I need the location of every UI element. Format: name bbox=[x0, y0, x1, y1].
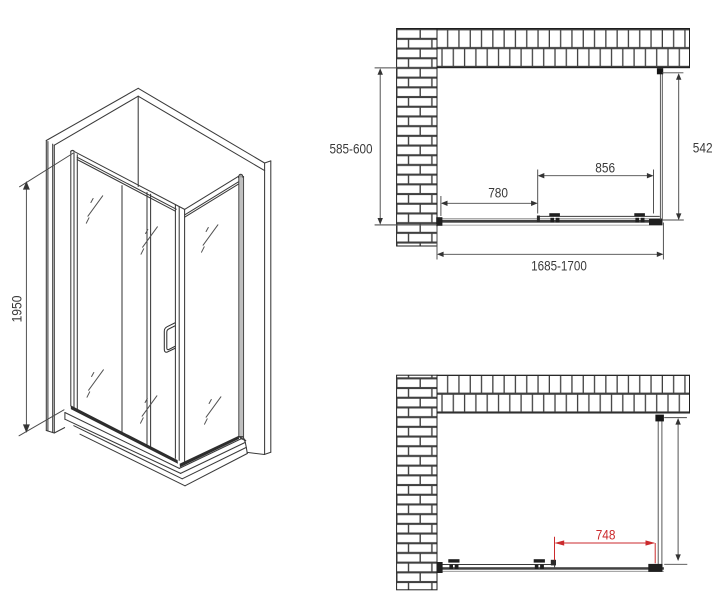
svg-text:780: 780 bbox=[488, 186, 508, 201]
svg-text:856: 856 bbox=[595, 160, 615, 175]
svg-text:748: 748 bbox=[596, 527, 616, 542]
svg-text:1685-1700: 1685-1700 bbox=[531, 258, 587, 273]
svg-text:1950: 1950 bbox=[9, 295, 24, 322]
svg-text:585-600: 585-600 bbox=[330, 141, 373, 156]
svg-text:542: 542 bbox=[693, 141, 713, 156]
